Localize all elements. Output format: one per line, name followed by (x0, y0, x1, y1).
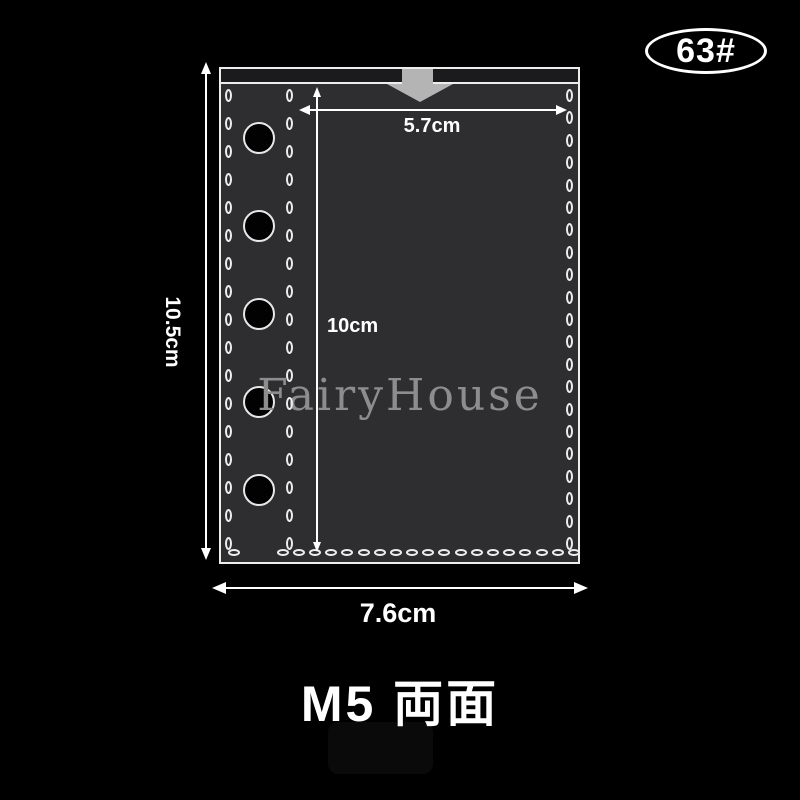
stitch-mark (225, 89, 232, 102)
stitch-mark (225, 229, 232, 242)
stitch-mark (225, 285, 232, 298)
stitch-mark (286, 481, 293, 494)
stitch-mark (286, 509, 293, 522)
stitch-mark (374, 549, 386, 556)
arrow-right-icon (574, 582, 588, 594)
stitch-mark (566, 201, 573, 214)
stitch-mark (487, 549, 499, 556)
pouch-flap (221, 69, 578, 84)
stitch-mark (566, 425, 573, 438)
stitch-mark (566, 403, 573, 416)
stitch-mark (225, 257, 232, 270)
stitch-mark (225, 173, 232, 186)
stitch-mark (225, 369, 232, 382)
stitch-mark (225, 397, 232, 410)
arrow-down-icon (313, 542, 321, 552)
arrow-left-icon (212, 582, 226, 594)
watermark-text: FairyHouse (220, 370, 580, 421)
stitch-mark (225, 425, 232, 438)
stitch-mark (566, 291, 573, 304)
stitch-mark (225, 201, 232, 214)
stitch-mark (286, 145, 293, 158)
stitch-mark (286, 537, 293, 550)
stitch-mark (566, 537, 573, 550)
stitch-mark (225, 509, 232, 522)
stitch-mark (471, 549, 483, 556)
stitch-mark (286, 425, 293, 438)
stitch-mark (536, 549, 548, 556)
stitch-mark (225, 537, 232, 550)
stitch-mark (566, 470, 573, 483)
stitch-mark (455, 549, 467, 556)
dimension-line (316, 96, 318, 542)
stitch-mark (286, 201, 293, 214)
stitch-mark (228, 549, 240, 556)
stitch-mark (225, 453, 232, 466)
stitch-mark (358, 549, 370, 556)
stitch-mark (225, 313, 232, 326)
stitch-mark (225, 117, 232, 130)
dimension-line (223, 587, 577, 589)
arrow-up-icon (201, 62, 211, 74)
stitch-mark (277, 549, 289, 556)
stitch-mark (225, 341, 232, 354)
arrow-left-icon (299, 105, 310, 115)
stitch-mark (566, 380, 573, 393)
stitch-mark (552, 549, 564, 556)
arrow-up-icon (313, 87, 321, 97)
size-badge-label: 63# (676, 32, 736, 71)
dimension-label-inner-height: 10cm (327, 315, 378, 338)
stitch-mark (286, 369, 293, 382)
stitch-mark (566, 313, 573, 326)
stitch-mark (566, 492, 573, 505)
dimension-label-outer-width: 7.6cm (318, 598, 478, 629)
stitch-mark (286, 285, 293, 298)
stitch-mark (566, 223, 573, 236)
stitch-mark (390, 549, 402, 556)
binder-hole (243, 122, 275, 154)
stitch-mark (566, 89, 573, 102)
stitch-mark (286, 173, 293, 186)
stitch-mark (225, 145, 232, 158)
stitch-mark (566, 156, 573, 169)
stitch-mark (566, 179, 573, 192)
stitch-mark (566, 246, 573, 259)
stitch-mark (286, 341, 293, 354)
insert-arrow-icon (387, 84, 453, 102)
binder-hole (243, 474, 275, 506)
dimension-label-inner-width: 5.7cm (352, 115, 512, 138)
stitch-mark (406, 549, 418, 556)
product-title: M5 両面 (0, 664, 800, 736)
stitch-mark (286, 257, 293, 270)
stitch-mark (568, 549, 580, 556)
dimension-line (308, 109, 558, 111)
stitch-mark (286, 229, 293, 242)
product-image: 63# FairyHouse 10.5cm 7.6cm 5.7cm 10cm M… (0, 0, 800, 800)
binder-hole (243, 210, 275, 242)
stitch-mark (566, 134, 573, 147)
stitch-mark (286, 117, 293, 130)
insert-arrow-icon (402, 69, 433, 84)
stitch-mark (225, 481, 232, 494)
stitch-mark (286, 453, 293, 466)
dimension-line (205, 72, 207, 550)
stitch-mark (566, 515, 573, 528)
stitch-mark (566, 335, 573, 348)
stitch-mark (286, 89, 293, 102)
stitch-mark (286, 397, 293, 410)
stitch-mark (566, 268, 573, 281)
stitch-mark (566, 358, 573, 371)
stitch-mark (286, 313, 293, 326)
binder-hole (243, 298, 275, 330)
arrow-down-icon (201, 548, 211, 560)
stitch-mark (293, 549, 305, 556)
arrow-right-icon (556, 105, 567, 115)
size-badge: 63# (645, 28, 767, 74)
dimension-label-outer-height: 10.5cm (160, 280, 184, 384)
stitch-mark (566, 447, 573, 460)
